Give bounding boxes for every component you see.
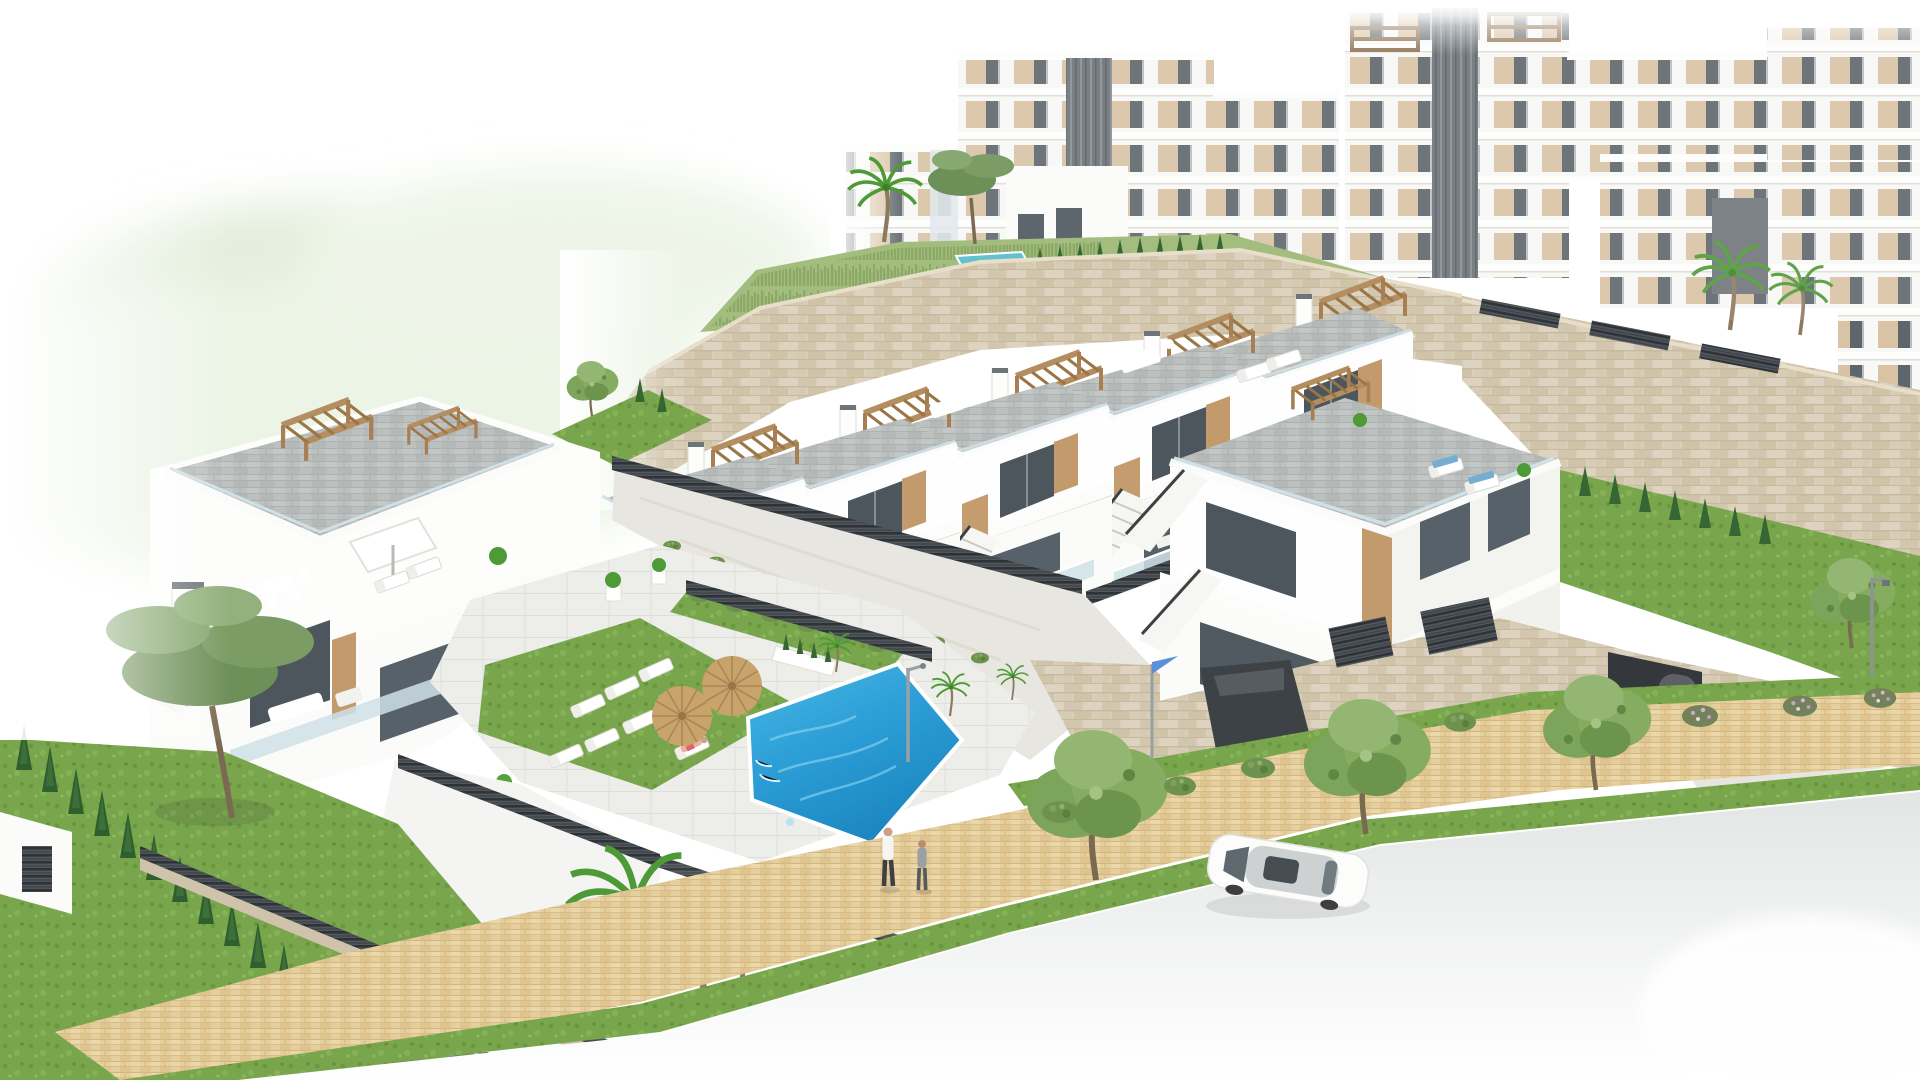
straw-umbrella — [702, 656, 762, 716]
architectural-render-image — [0, 0, 1920, 1080]
straw-umbrella — [652, 686, 712, 746]
swimmer — [786, 818, 794, 826]
render-canvas — [0, 0, 1920, 1080]
